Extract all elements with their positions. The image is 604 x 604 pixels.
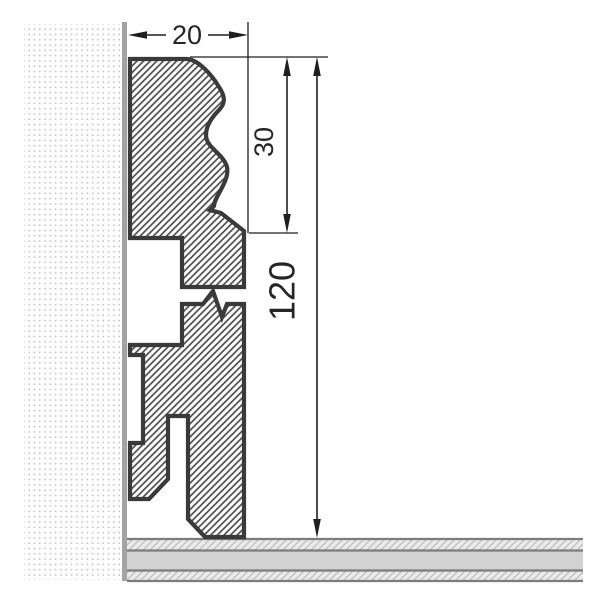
dimension-upper-30 bbox=[283, 57, 291, 233]
wall-face-strip bbox=[122, 22, 127, 581]
profile-lower-part bbox=[130, 291, 244, 537]
profile-upper-part bbox=[130, 59, 244, 287]
arrowhead-up-icon bbox=[313, 57, 321, 76]
arrowhead-left-icon bbox=[128, 31, 147, 39]
dimension-label-total-height: 120 bbox=[262, 261, 303, 321]
floor-top-screed-layer bbox=[127, 540, 583, 550]
arrowhead-down-icon bbox=[283, 214, 291, 233]
skirting-profile-drawing: 20 30 120 bbox=[0, 0, 604, 604]
skirting-profile bbox=[130, 59, 244, 537]
arrowhead-right-icon bbox=[229, 31, 248, 39]
technical-drawing-canvas: 20 30 120 bbox=[0, 0, 604, 604]
floor-bottom-layer bbox=[127, 571, 583, 580]
dimension-label-width: 20 bbox=[172, 20, 202, 50]
floor-middle-layer bbox=[127, 551, 583, 570]
arrowhead-up-icon bbox=[283, 57, 291, 76]
dimension-label-upper-height: 30 bbox=[249, 127, 279, 157]
wall-section bbox=[24, 22, 127, 581]
dimension-total-120 bbox=[313, 57, 321, 538]
floor-section bbox=[127, 539, 583, 581]
wall-plaster-dotted-area bbox=[24, 24, 122, 580]
arrowhead-down-icon bbox=[313, 519, 321, 538]
